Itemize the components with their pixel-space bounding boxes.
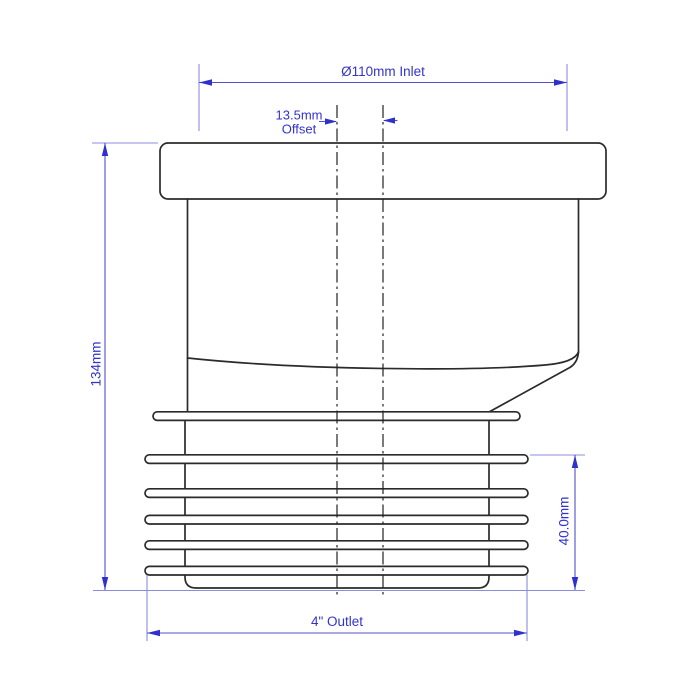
offset-arrow-left [325, 118, 337, 124]
seal-arrow-top [572, 455, 578, 468]
dimension-inlet: Ø110mm Inlet [199, 64, 567, 131]
offset-dimension-label-line2: Offset [282, 122, 317, 137]
dimension-seal-depth: 40.0mm [530, 455, 585, 590]
offset-arrow-right [383, 117, 395, 123]
seal-depth-dimension-label: 40.0mm [557, 497, 572, 546]
outlet-arrow-right [514, 630, 527, 636]
inlet-dimension-label: Ø110mm Inlet [341, 64, 425, 79]
outlet-arrow-left [147, 630, 160, 636]
height-arrow-bottom [102, 577, 108, 590]
inlet-arrow-right [554, 79, 567, 85]
offset-dimension-label-line1: 13.5mm [276, 108, 323, 123]
height-arrow-top [102, 143, 108, 156]
inlet-arrow-left [199, 79, 212, 85]
part-outline [145, 143, 606, 588]
seal-arrow-bottom [572, 577, 578, 590]
technical-drawing-canvas: Ø110mm Inlet 13.5mm Offset 134mm 40.0mm … [0, 0, 700, 700]
outlet-dimension-label: 4" Outlet [311, 614, 363, 629]
height-dimension-label: 134mm [89, 341, 104, 386]
offset-pan-connector-drawing: Ø110mm Inlet 13.5mm Offset 134mm 40.0mm … [0, 0, 700, 700]
